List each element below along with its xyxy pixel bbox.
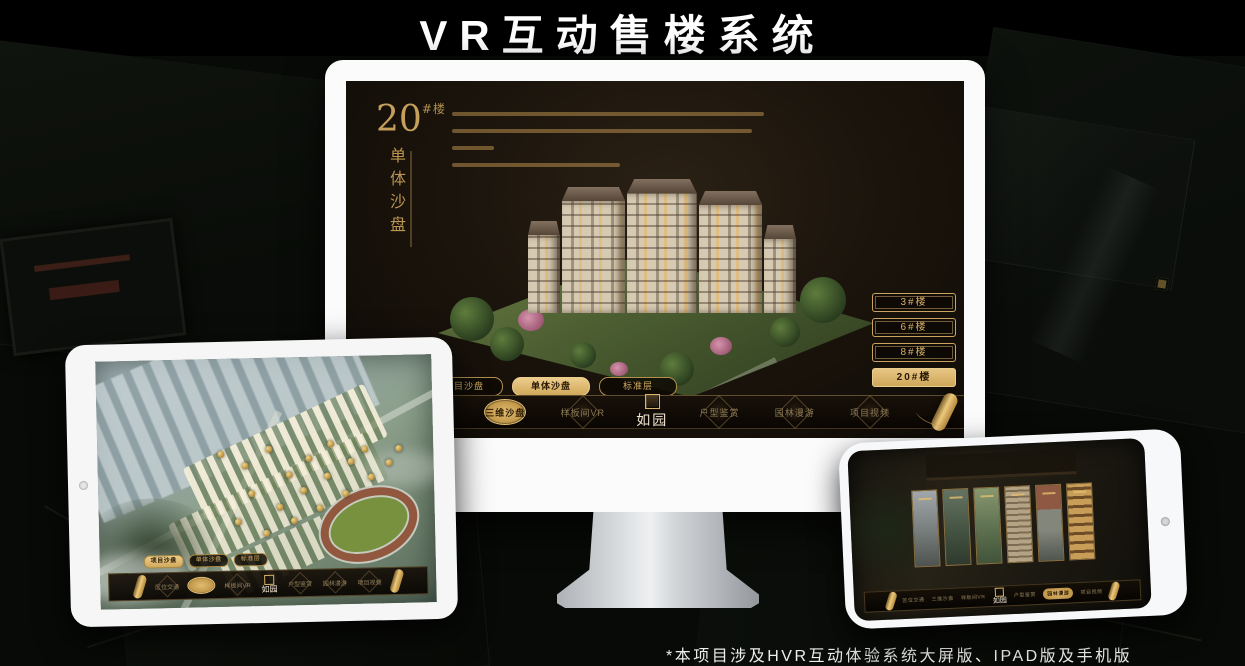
tree [570,342,596,368]
building-button[interactable]: 3#楼 [872,293,956,312]
menu-item-project-video[interactable]: 项目视频 [1080,588,1102,596]
menu-item-showroom-vr[interactable]: 样板间VR [224,580,251,590]
scene-card[interactable] [973,487,1002,565]
tablet-frame: 项目沙盘 单体沙盘 标准层 区位交通 三维沙盘 样板间VR 如园 户型鉴赏 园林… [65,337,458,628]
building-badge[interactable] [263,530,270,537]
tab-standard-floor[interactable]: 标准层 [234,553,268,567]
brand-logo: 如园 [261,574,277,593]
scene-card[interactable] [1066,482,1095,560]
building-button[interactable]: 6#楼 [872,318,956,337]
menu-item-3d-sandbox[interactable]: 三维沙盘 [190,581,214,591]
building-badge[interactable] [347,458,354,465]
residential-building-model [528,173,796,313]
scroll-icon[interactable] [132,574,148,600]
scene-gallery [911,482,1095,567]
tree [800,277,846,323]
building-wing [528,221,560,313]
award-plaque [0,218,187,356]
menu-item-showroom-vr[interactable]: 样板间VR [557,404,610,421]
building-badge[interactable] [317,505,324,512]
phone-screen: 区位交通 三维沙盘 样板间VR 如园 户型鉴赏 园林漫游 项目视频 [847,438,1151,621]
tree [490,327,524,361]
tree [450,297,494,341]
tablet-camera [79,481,88,490]
menu-item-location[interactable]: 区位交通 [155,581,179,591]
menu-item-3d-sandbox[interactable]: 三维沙盘 [932,595,954,603]
menu-item-floorplans[interactable]: 户型鉴赏 [1014,591,1036,599]
scroll-icon[interactable] [1107,581,1120,602]
tab-project-sandbox[interactable]: 项目沙盘 [144,555,184,569]
description-text-line [452,146,494,150]
scene-card[interactable] [942,488,971,566]
building-button[interactable]: 8#楼 [872,343,956,362]
menu-item-showroom-vr[interactable]: 样板间VR [961,593,986,601]
tablet-menu-bar: 区位交通 三维沙盘 样板间VR 如园 户型鉴赏 园林漫游 项目视频 [108,566,429,601]
menu-item-project-video[interactable]: 项目视频 [846,404,894,421]
building-badge[interactable] [291,517,298,524]
building-number-suffix: #楼 [422,102,446,116]
scroll-icon[interactable] [929,391,960,434]
tree [770,317,800,347]
phone-frame: 区位交通 三维沙盘 样板间VR 如园 户型鉴赏 园林漫游 项目视频 [838,428,1188,629]
flower-bed [610,362,628,376]
building-3d-render[interactable] [410,167,890,407]
tab-single-building-sandbox[interactable]: 单体沙盘 [512,377,590,396]
scroll-icon[interactable] [389,568,405,594]
menu-item-project-video[interactable]: 项目视频 [357,577,381,587]
description-text-line [452,112,764,116]
menu-item-garden-tour[interactable]: 园林漫游 [771,404,819,421]
flower-bed [710,337,732,355]
building-block [562,187,626,313]
menu-item-floorplans[interactable]: 户型鉴赏 [288,578,312,588]
building-button-active[interactable]: 20#楼 [872,368,956,387]
building-block [627,179,696,313]
description-text-line [452,129,752,133]
tab-single-building-sandbox[interactable]: 单体沙盘 [189,554,229,568]
brand-seal-icon [264,574,274,584]
marketing-composite: VR互动售楼系统 20#楼 单体沙盘 [0,0,1245,666]
menu-item-3d-sandbox[interactable]: 三维沙盘 [481,404,529,421]
headline-vertical-label: 单体沙盘 [384,147,408,239]
menu-item-garden-tour[interactable]: 园林漫游 [323,578,347,588]
brand-seal-icon [645,394,660,409]
background-brand-icon [1155,277,1169,291]
building-selector: 3#楼 6#楼 8#楼 20#楼 [872,293,956,387]
brand-logo: 如园 [636,394,668,430]
tablet-screen: 项目沙盘 单体沙盘 标准层 区位交通 三维沙盘 样板间VR 如园 户型鉴赏 园林… [95,354,437,610]
menu-item-floorplans[interactable]: 户型鉴赏 [695,404,743,421]
building-badge[interactable] [305,455,312,462]
scene-card[interactable] [911,489,940,567]
page-title: VR互动售楼系统 [0,2,1245,63]
building-wing [764,225,796,313]
building-block [699,191,763,313]
brand-logo: 如园 [992,587,1007,605]
phone-camera [1161,517,1170,526]
scene-card[interactable] [1035,484,1064,562]
menu-item-location[interactable]: 区位交通 [902,596,924,604]
building-number-headline: 20#楼 [376,99,446,140]
brand-seal-icon [995,587,1004,596]
menu-item-garden-tour[interactable]: 园林漫游 [1043,587,1073,599]
scroll-icon[interactable] [884,591,897,612]
footnote: *本项目涉及HVR互动体验系统大屏版、IPAD版及手机版 [666,642,1132,666]
scene-card[interactable] [1004,485,1033,563]
interior-pergola [926,449,1077,481]
